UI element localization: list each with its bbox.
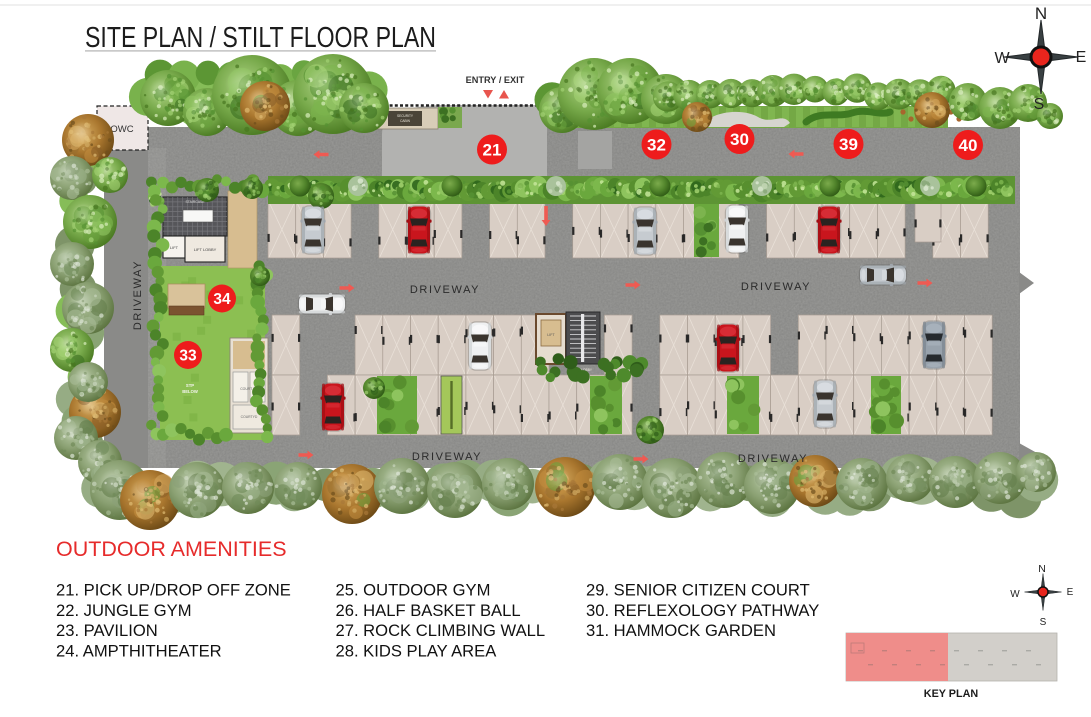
svg-text:33: 33 — [179, 348, 197, 365]
svg-text:DRIVEWAY: DRIVEWAY — [412, 451, 482, 463]
svg-text:22. JUNGLE GYM: 22. JUNGLE GYM — [56, 601, 192, 620]
svg-text:W: W — [994, 50, 1010, 67]
svg-text:LIFT: LIFT — [547, 333, 555, 337]
svg-text:E: E — [1067, 587, 1074, 598]
svg-text:ENTRY / EXIT: ENTRY / EXIT — [466, 75, 525, 85]
svg-text:OWC: OWC — [110, 124, 133, 135]
svg-text:23. PAVILION: 23. PAVILION — [56, 621, 158, 640]
svg-text:S: S — [1034, 96, 1045, 113]
svg-text:32: 32 — [647, 136, 666, 155]
svg-text:LIFT LOBBY: LIFT LOBBY — [194, 247, 217, 252]
svg-text:29. SENIOR CITIZEN COURT: 29. SENIOR CITIZEN COURT — [586, 581, 810, 600]
svg-text:24. AMPTHITHEATER: 24. AMPTHITHEATER — [56, 641, 222, 660]
svg-text:DRIVEWAY: DRIVEWAY — [410, 284, 480, 296]
svg-text:COURTYD: COURTYD — [241, 415, 258, 419]
svg-text:N: N — [1035, 4, 1047, 23]
svg-text:30. REFLEXOLOGY PATHWAY: 30. REFLEXOLOGY PATHWAY — [586, 601, 819, 620]
svg-text:W: W — [1010, 589, 1020, 600]
svg-text:E: E — [1076, 49, 1087, 66]
svg-text:31. HAMMOCK GARDEN: 31. HAMMOCK GARDEN — [586, 621, 776, 640]
svg-text:DRIVEWAY: DRIVEWAY — [741, 281, 811, 293]
svg-text:27. ROCK CLIMBING WALL: 27. ROCK CLIMBING WALL — [336, 621, 546, 640]
svg-text:39: 39 — [839, 135, 858, 154]
svg-text:S: S — [1040, 617, 1047, 628]
svg-text:STP: STP — [186, 383, 194, 388]
svg-text:21: 21 — [483, 141, 502, 160]
svg-text:SECURITY: SECURITY — [397, 114, 414, 118]
svg-text:30: 30 — [730, 130, 749, 149]
svg-text:LIFT: LIFT — [170, 245, 179, 250]
svg-text:DRIVEWAY: DRIVEWAY — [132, 260, 144, 330]
svg-text:34: 34 — [213, 291, 231, 308]
svg-text:N: N — [1038, 563, 1046, 575]
svg-text:DRIVEWAY: DRIVEWAY — [738, 453, 808, 465]
svg-text:25. OUTDOOR GYM: 25. OUTDOOR GYM — [336, 581, 491, 600]
svg-text:26. HALF BASKET BALL: 26. HALF BASKET BALL — [336, 601, 521, 620]
svg-text:BELOW: BELOW — [182, 389, 198, 394]
svg-text:40: 40 — [959, 136, 978, 155]
svg-text:CABIN: CABIN — [400, 119, 410, 123]
svg-text:OUTDOOR AMENITIES: OUTDOOR AMENITIES — [56, 537, 287, 561]
svg-text:21. PICK UP/DROP OFF ZONE: 21. PICK UP/DROP OFF ZONE — [56, 581, 291, 600]
svg-text:KEY PLAN: KEY PLAN — [924, 688, 979, 700]
svg-text:SITE PLAN / STILT FLOOR PLAN: SITE PLAN / STILT FLOOR PLAN — [85, 22, 436, 54]
svg-text:28. KIDS PLAY AREA: 28. KIDS PLAY AREA — [336, 641, 498, 660]
